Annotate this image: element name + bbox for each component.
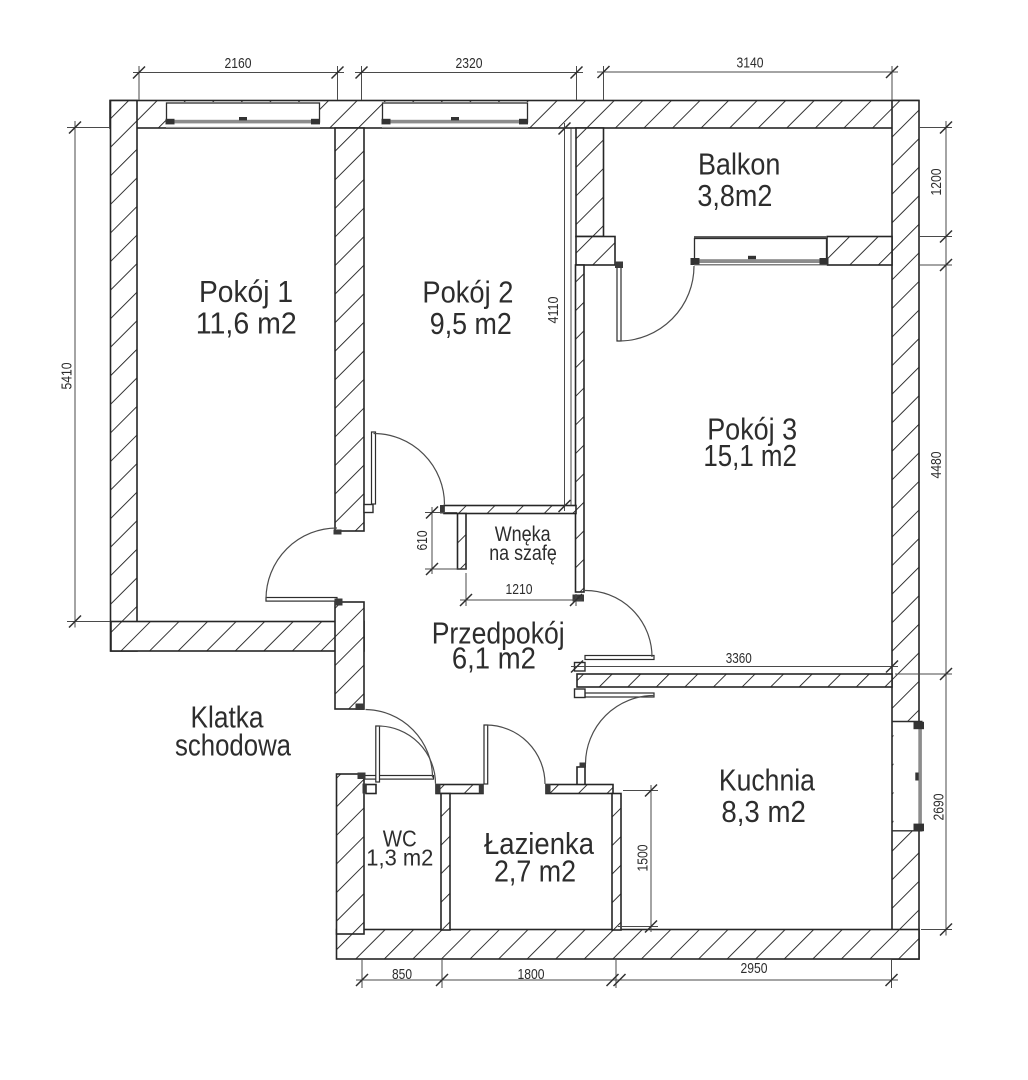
svg-text:schodowa: schodowa xyxy=(175,728,292,763)
svg-text:15,1 m2: 15,1 m2 xyxy=(703,438,797,473)
svg-text:4480: 4480 xyxy=(928,452,945,479)
svg-text:1500: 1500 xyxy=(635,845,652,872)
svg-text:9,5 m2: 9,5 m2 xyxy=(430,306,512,341)
svg-text:Kuchnia: Kuchnia xyxy=(719,763,816,798)
svg-text:Pokój 2: Pokój 2 xyxy=(422,275,513,310)
svg-text:3,8m2: 3,8m2 xyxy=(697,178,772,213)
svg-text:850: 850 xyxy=(392,966,412,983)
svg-text:1800: 1800 xyxy=(518,966,545,983)
svg-text:2690: 2690 xyxy=(931,794,948,821)
svg-text:610: 610 xyxy=(414,531,431,551)
svg-text:4110: 4110 xyxy=(545,297,562,324)
svg-text:3140: 3140 xyxy=(737,55,764,72)
svg-text:1200: 1200 xyxy=(928,169,945,196)
svg-text:Balkon: Balkon xyxy=(698,147,781,182)
svg-text:2,7 m2: 2,7 m2 xyxy=(494,854,576,889)
svg-text:2320: 2320 xyxy=(456,55,483,72)
svg-text:5410: 5410 xyxy=(59,363,76,390)
svg-text:1,3 m2: 1,3 m2 xyxy=(366,845,433,871)
svg-text:1210: 1210 xyxy=(506,581,533,598)
svg-text:2950: 2950 xyxy=(741,960,768,977)
svg-text:8,3 m2: 8,3 m2 xyxy=(721,794,806,829)
svg-text:11,6 m2: 11,6 m2 xyxy=(196,306,297,341)
svg-text:2160: 2160 xyxy=(225,55,252,72)
svg-text:Pokój 1: Pokój 1 xyxy=(199,274,293,309)
svg-text:3360: 3360 xyxy=(726,650,752,667)
svg-text:6,1 m2: 6,1 m2 xyxy=(452,641,536,676)
svg-text:na szafę: na szafę xyxy=(489,542,557,565)
